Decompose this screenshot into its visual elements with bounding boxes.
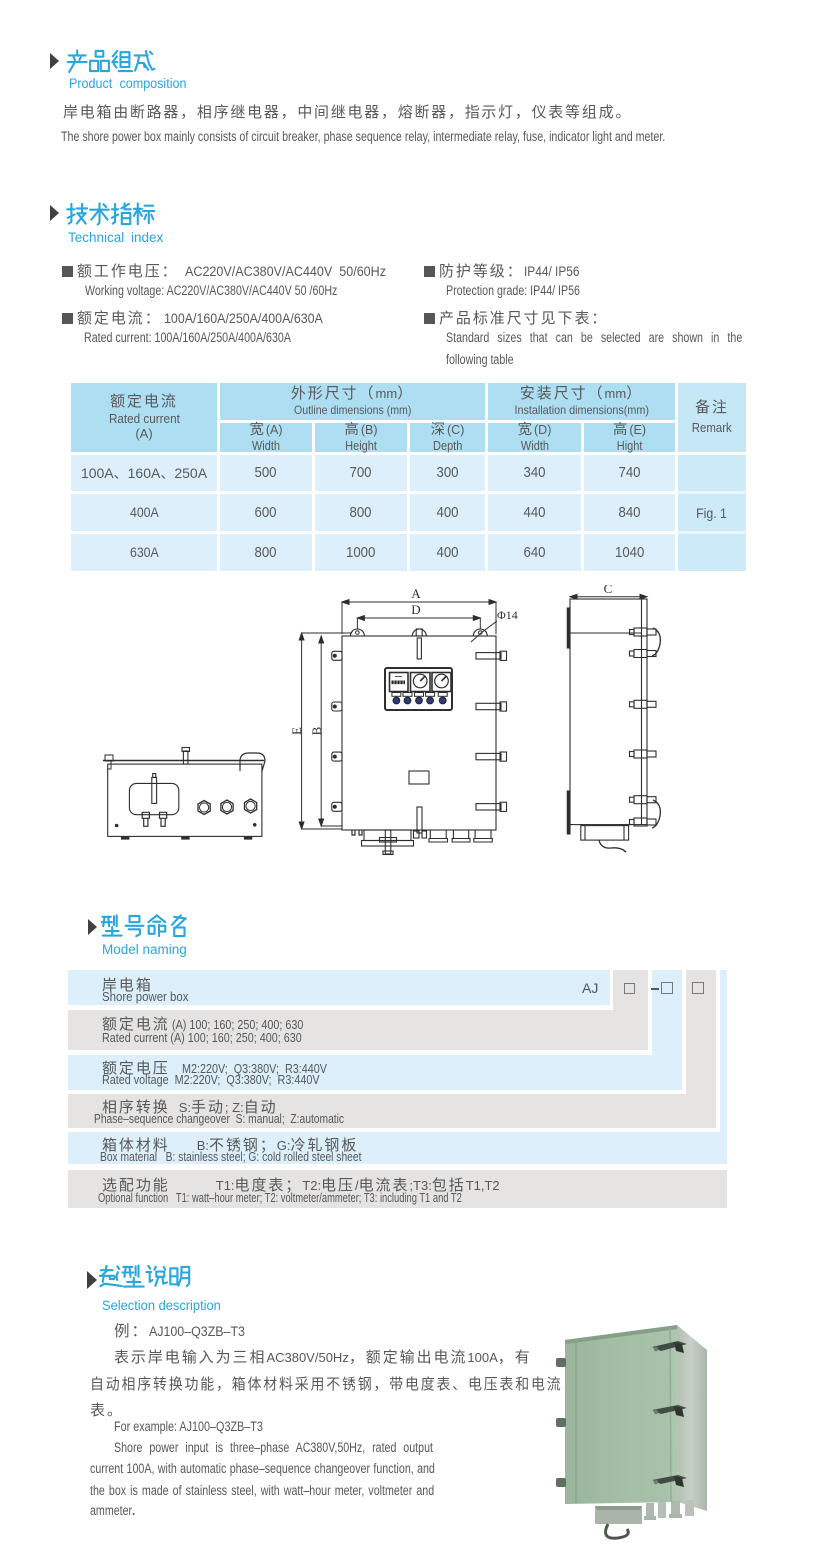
svg-text:Φ14: Φ14 <box>497 608 518 622</box>
svg-text:A: A <box>411 586 421 601</box>
svg-text:E: E <box>289 727 304 735</box>
svg-text:D: D <box>411 602 420 617</box>
svg-text:B: B <box>309 726 324 735</box>
svg-text:C: C <box>604 585 613 596</box>
